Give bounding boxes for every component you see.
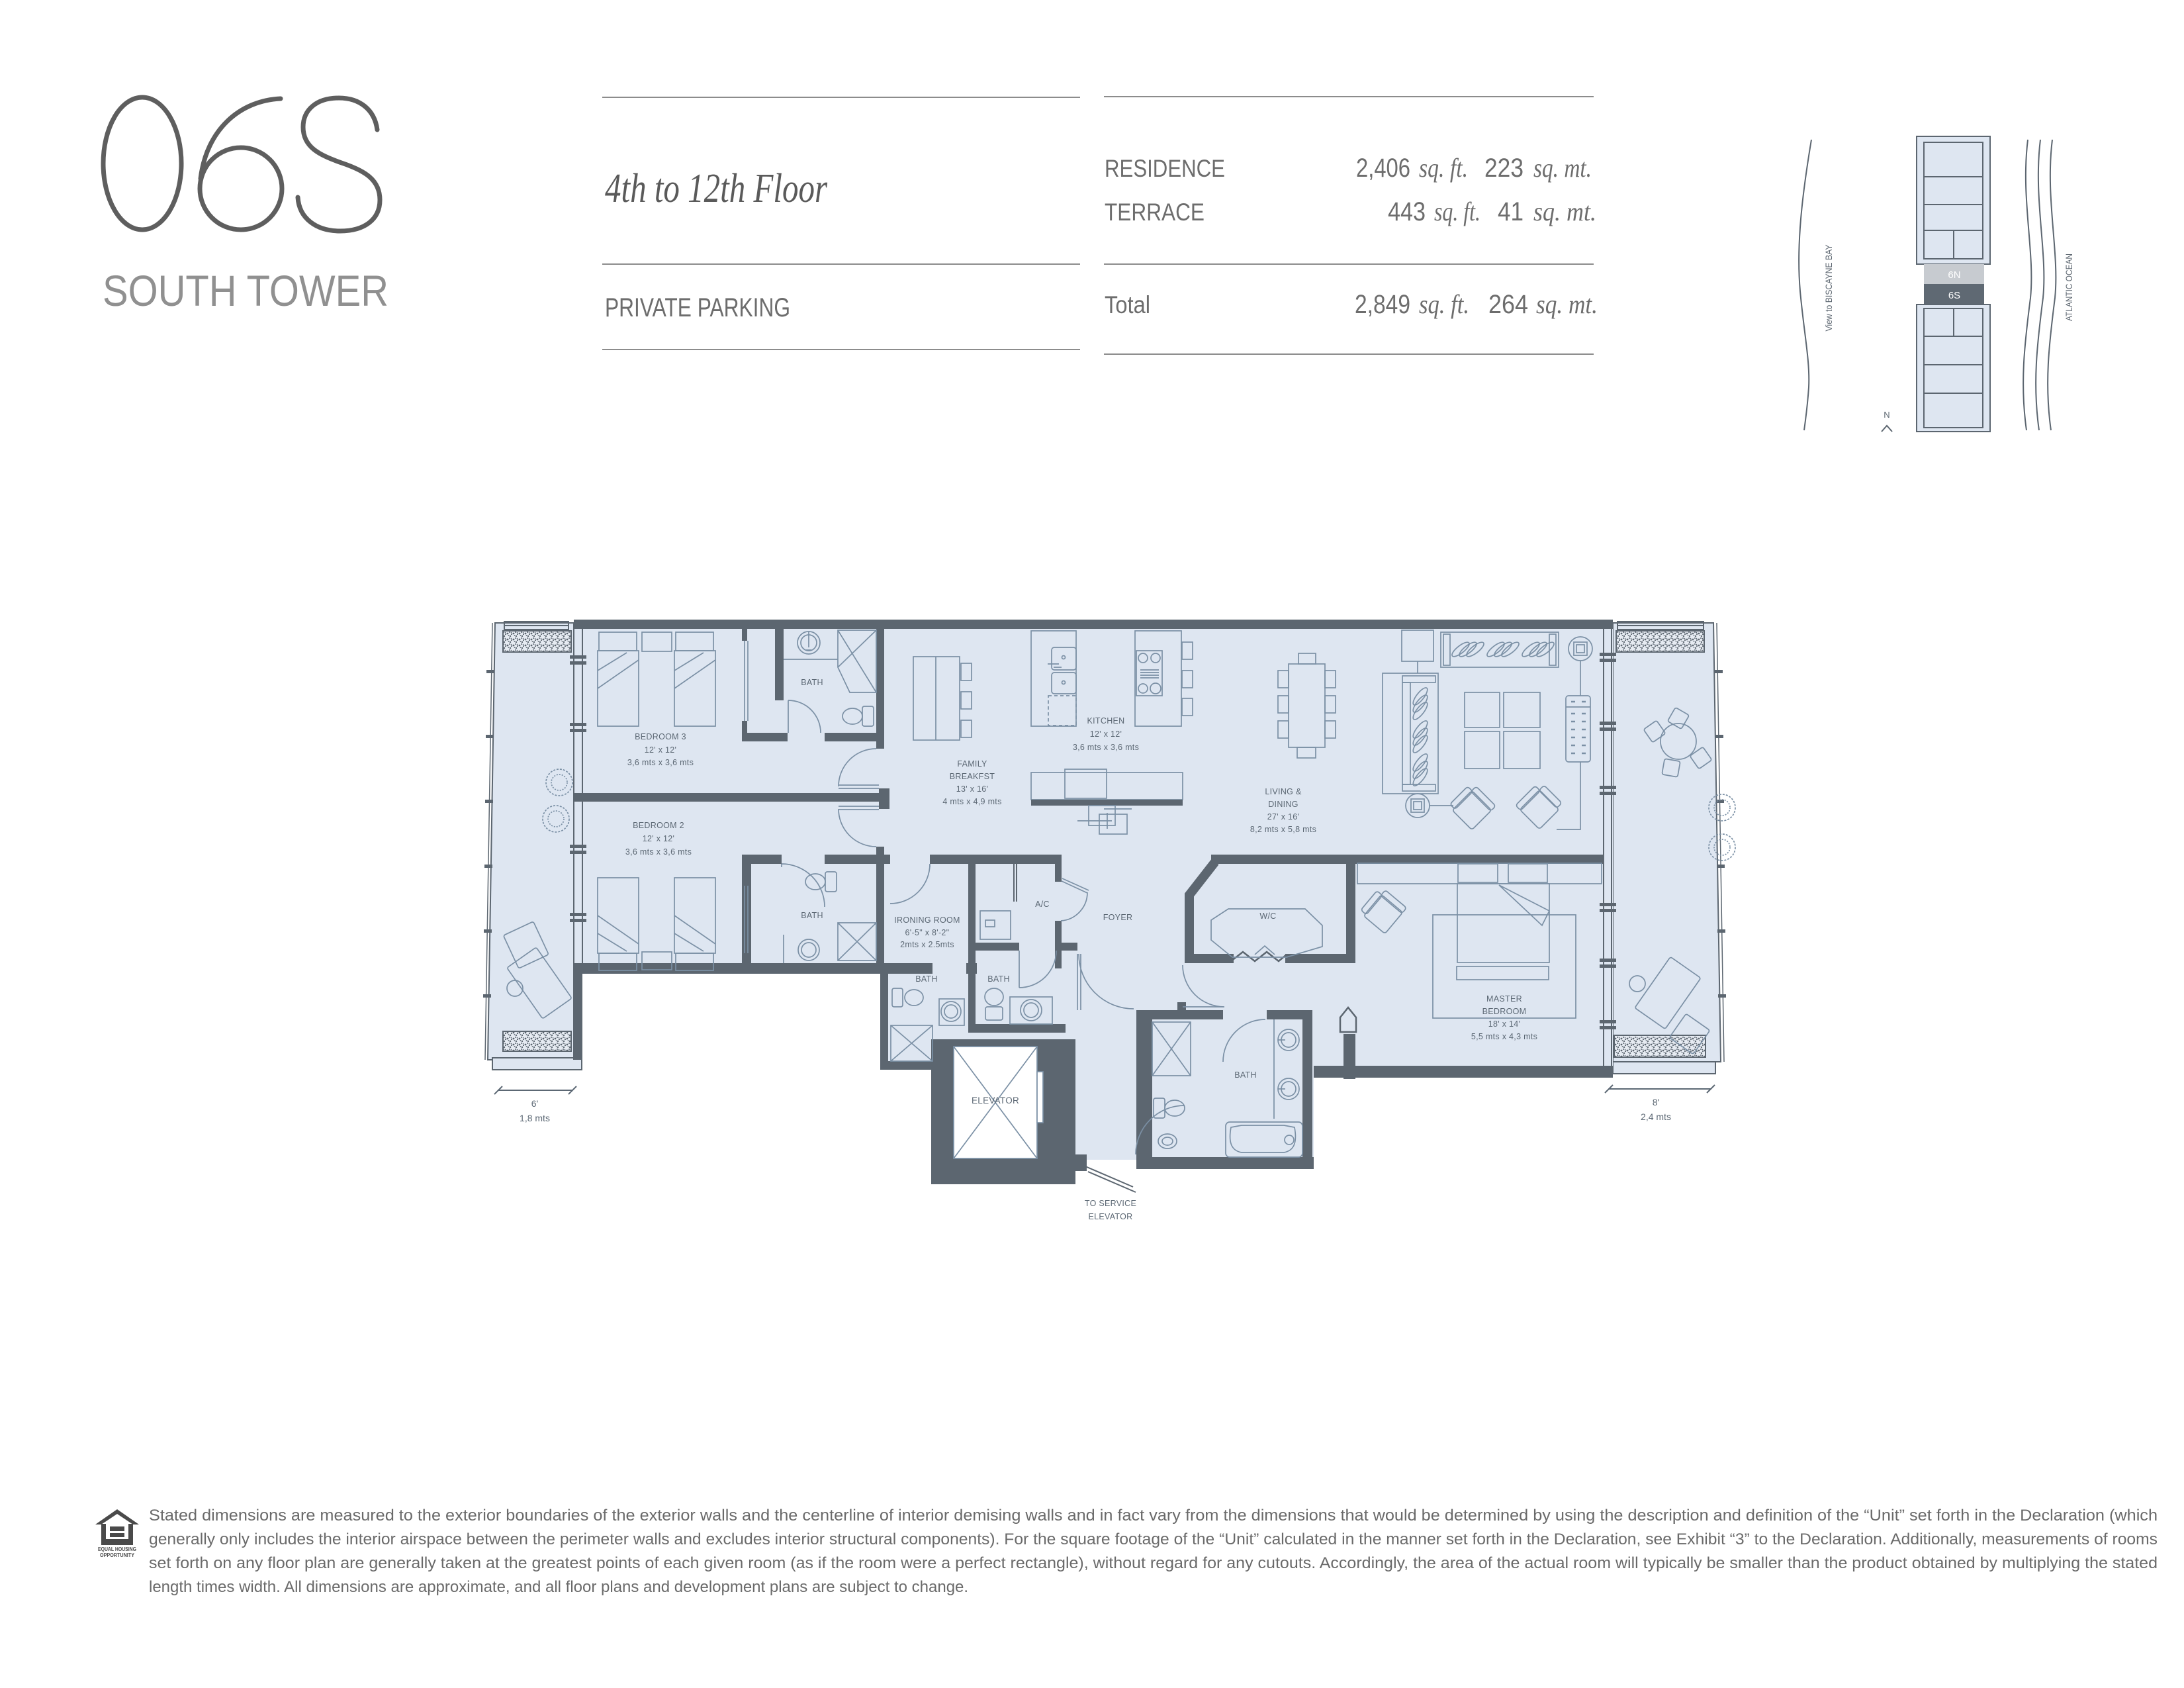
svg-text:4th to 12th Floor: 4th to 12th Floor	[605, 166, 828, 211]
svg-text:12' x 12': 12' x 12'	[643, 834, 674, 843]
svg-text:EQUAL HOUSING: EQUAL HOUSING	[98, 1546, 136, 1552]
svg-text:ATLANTIC OCEAN: ATLANTIC OCEAN	[2064, 254, 2074, 321]
svg-text:length times width. All dimens: length times width. All dimensions are a…	[149, 1578, 968, 1596]
svg-text:KITCHEN: KITCHEN	[1087, 716, 1125, 726]
svg-text:3,6 mts x 3,6 mts: 3,6 mts x 3,6 mts	[625, 847, 692, 857]
svg-text:2,849: 2,849	[1355, 290, 1410, 319]
svg-text:Stated dimensions are measured: Stated dimensions are measured to the ex…	[149, 1507, 2158, 1524]
svg-text:LIVING &: LIVING &	[1265, 787, 1302, 796]
svg-text:6': 6'	[531, 1098, 538, 1109]
svg-text:BEDROOM 3: BEDROOM 3	[635, 732, 686, 741]
svg-text:6N: 6N	[1948, 269, 1960, 281]
svg-text:sq. mt.: sq. mt.	[1533, 197, 1596, 226]
svg-text:FOYER: FOYER	[1103, 913, 1133, 922]
svg-text:3,6 mts x 3,6 mts: 3,6 mts x 3,6 mts	[627, 758, 694, 767]
svg-text:8,2 mts x 5,8 mts: 8,2 mts x 5,8 mts	[1250, 825, 1316, 834]
svg-text:BATH: BATH	[801, 911, 823, 920]
svg-text:6'-5" x 8'-2": 6'-5" x 8'-2"	[905, 928, 950, 937]
svg-text:sq. mt.: sq. mt.	[1533, 153, 1592, 183]
svg-text:443: 443	[1388, 197, 1426, 226]
svg-text:18' x 14': 18' x 14'	[1488, 1019, 1520, 1029]
svg-text:TO SERVICE: TO SERVICE	[1085, 1199, 1136, 1208]
svg-text:ELEVATOR: ELEVATOR	[1088, 1212, 1132, 1221]
svg-text:BEDROOM: BEDROOM	[1482, 1007, 1527, 1016]
svg-text:13' x 16': 13' x 16'	[956, 784, 988, 794]
svg-text:BATH: BATH	[987, 974, 1010, 984]
svg-text:DINING: DINING	[1268, 800, 1298, 809]
svg-text:264: 264	[1488, 290, 1528, 319]
svg-text:IRONING ROOM: IRONING ROOM	[894, 915, 960, 925]
svg-text:RESIDENCE: RESIDENCE	[1105, 155, 1225, 182]
svg-text:set forth on any floor plan ar: set forth on any floor plan are generall…	[149, 1554, 2158, 1572]
svg-text:5,5 mts x 4,3 mts: 5,5 mts x 4,3 mts	[1471, 1032, 1537, 1041]
svg-text:1,8 mts: 1,8 mts	[520, 1113, 550, 1123]
svg-text:FAMILY: FAMILY	[957, 759, 987, 769]
svg-text:12' x 12': 12' x 12'	[1090, 729, 1122, 739]
svg-text:PRIVATE PARKING: PRIVATE PARKING	[605, 293, 790, 322]
svg-text:8': 8'	[1653, 1097, 1659, 1107]
svg-text:N: N	[1884, 410, 1889, 420]
svg-text:View to BISCAYNE BAY: View to BISCAYNE BAY	[1823, 244, 1834, 332]
svg-text:BEDROOM 2: BEDROOM 2	[633, 821, 684, 830]
svg-text:27' x 16': 27' x 16'	[1267, 812, 1299, 821]
svg-text:41: 41	[1498, 197, 1524, 226]
svg-text:sq. mt.: sq. mt.	[1536, 289, 1598, 319]
svg-text:Total: Total	[1105, 291, 1150, 318]
svg-text:3,6 mts x 3,6 mts: 3,6 mts x 3,6 mts	[1073, 743, 1139, 752]
svg-text:W/C: W/C	[1259, 912, 1276, 921]
svg-text:BATH: BATH	[1234, 1070, 1257, 1080]
svg-text:SOUTH TOWER: SOUTH TOWER	[103, 266, 388, 315]
svg-text:12' x 12': 12' x 12'	[645, 745, 676, 755]
svg-text:OPPORTUNITY: OPPORTUNITY	[100, 1552, 135, 1558]
svg-text:2,406: 2,406	[1356, 154, 1410, 183]
svg-text:ELEVATOR: ELEVATOR	[972, 1095, 1019, 1105]
svg-text:sq. ft.: sq. ft.	[1419, 289, 1469, 319]
svg-text:A/C: A/C	[1035, 900, 1050, 909]
svg-text:MASTER: MASTER	[1486, 994, 1522, 1004]
svg-text:BATH: BATH	[915, 974, 938, 984]
svg-text:BATH: BATH	[801, 678, 823, 687]
svg-text:TERRACE: TERRACE	[1105, 199, 1205, 226]
svg-text:BREAKFST: BREAKFST	[950, 772, 995, 781]
svg-text:6S: 6S	[1948, 290, 1960, 301]
svg-text:generally only includes the in: generally only includes the interior air…	[149, 1530, 2158, 1548]
svg-text:2,4 mts: 2,4 mts	[1641, 1111, 1671, 1122]
svg-text:sq. ft.: sq. ft.	[1434, 197, 1480, 226]
svg-text:4 mts x 4,9 mts: 4 mts x 4,9 mts	[942, 797, 1001, 806]
svg-text:sq. ft.: sq. ft.	[1419, 153, 1468, 183]
svg-text:223: 223	[1484, 154, 1524, 183]
svg-text:2mts x 2.5mts: 2mts x 2.5mts	[900, 940, 954, 949]
